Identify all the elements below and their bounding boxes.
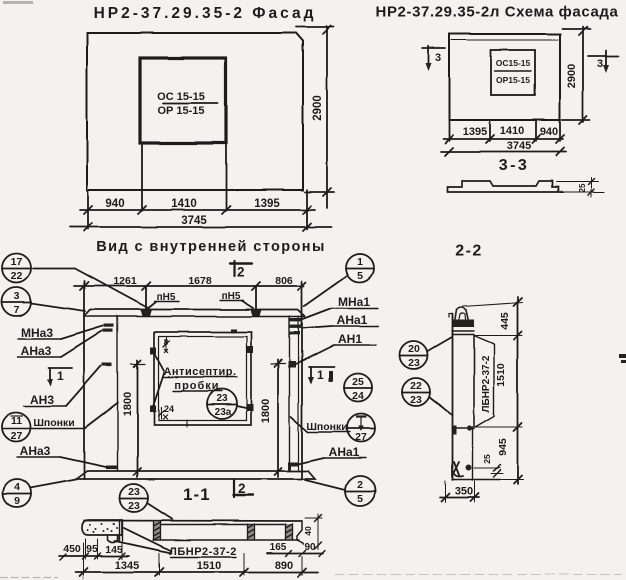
svg-text:пН5: пН5	[222, 291, 241, 302]
svg-text:165: 165	[270, 542, 287, 553]
svg-text:27: 27	[11, 430, 23, 442]
svg-text:2900: 2900	[312, 95, 324, 121]
svg-text:350: 350	[455, 486, 473, 498]
svg-text:450: 450	[63, 543, 81, 555]
svg-text:Шпонки: Шпонки	[33, 417, 74, 429]
svg-text:23: 23	[216, 393, 228, 404]
svg-text:23а: 23а	[215, 407, 232, 418]
svg-text:23: 23	[410, 394, 422, 406]
svg-text:1678: 1678	[188, 275, 212, 287]
svg-text:Вид с внутренней стороны: Вид с внутренней стороны	[96, 239, 325, 255]
svg-text:890: 890	[275, 560, 293, 572]
svg-text:23: 23	[128, 500, 140, 512]
svg-text:2: 2	[238, 481, 246, 496]
svg-text:АНа3: АНа3	[21, 344, 52, 358]
svg-text:22: 22	[11, 270, 23, 282]
svg-text:АН1: АН1	[338, 332, 362, 346]
svg-text:1800: 1800	[260, 399, 272, 423]
svg-text:пробки: пробки	[174, 380, 219, 392]
svg-text:АНа1: АНа1	[329, 445, 360, 459]
svg-text:940: 940	[105, 198, 124, 210]
svg-text:3: 3	[14, 290, 20, 302]
svg-text:1: 1	[57, 369, 64, 383]
svg-text:20: 20	[408, 343, 420, 355]
svg-text:806: 806	[275, 275, 293, 287]
svg-text:22: 22	[410, 380, 422, 392]
svg-text:25: 25	[482, 454, 492, 464]
svg-text:1: 1	[357, 256, 363, 268]
svg-text:2-2: 2-2	[455, 243, 483, 260]
svg-text:945: 945	[497, 438, 509, 456]
svg-text:пН5: пН5	[157, 292, 176, 303]
svg-text:АНа1: АНа1	[337, 313, 368, 327]
svg-text:Антисептир.: Антисептир.	[163, 366, 236, 378]
svg-text:МНа3: МНа3	[21, 326, 53, 340]
svg-text:2: 2	[237, 265, 245, 280]
svg-text:90: 90	[304, 542, 316, 553]
svg-text:145: 145	[105, 544, 123, 556]
svg-text:1800: 1800	[122, 392, 134, 416]
svg-text:1410: 1410	[500, 125, 524, 137]
svg-text:МНа1: МНа1	[338, 295, 370, 309]
svg-text:9: 9	[14, 495, 20, 507]
svg-text:НР2-37.29.35-2л Схема фасада: НР2-37.29.35-2л Схема фасада	[376, 4, 619, 21]
svg-text:1510: 1510	[197, 560, 221, 572]
svg-text:11: 11	[11, 415, 22, 427]
svg-text:3-3: 3-3	[499, 157, 530, 174]
svg-text:1395: 1395	[254, 198, 280, 210]
svg-text:ОР 15-15: ОР 15-15	[157, 105, 204, 117]
svg-text:1395: 1395	[463, 126, 487, 138]
svg-text:7: 7	[14, 304, 20, 316]
svg-text:3745: 3745	[181, 215, 207, 227]
svg-text:2: 2	[357, 479, 363, 491]
svg-text:АН3: АН3	[30, 393, 54, 407]
svg-text:ЛБНР2-37-2: ЛБНР2-37-2	[481, 355, 492, 412]
svg-text:3: 3	[597, 58, 603, 70]
svg-text:25: 25	[578, 183, 587, 192]
svg-text:1410: 1410	[171, 198, 197, 210]
svg-text:24: 24	[352, 390, 364, 402]
svg-text:НР2-37.29.35-2 Фасад: НР2-37.29.35-2 Фасад	[94, 5, 317, 22]
svg-text:1510: 1510	[495, 363, 507, 387]
svg-text:4: 4	[14, 481, 20, 493]
svg-text:2900: 2900	[566, 64, 578, 88]
svg-text:5: 5	[357, 270, 363, 282]
svg-text:3: 3	[435, 52, 441, 64]
svg-text:24: 24	[164, 404, 174, 414]
svg-text:1261: 1261	[113, 275, 137, 287]
svg-text:АНа3: АНа3	[20, 444, 51, 458]
svg-text:95: 95	[86, 543, 98, 555]
svg-text:23: 23	[128, 486, 140, 498]
svg-text:ОР15-15: ОР15-15	[496, 75, 530, 85]
svg-text:1345: 1345	[115, 560, 139, 572]
svg-text:940: 940	[540, 126, 558, 138]
svg-text:ЛБНР2-37-2: ЛБНР2-37-2	[169, 546, 237, 558]
svg-text:5: 5	[357, 493, 363, 505]
svg-text:23: 23	[408, 357, 420, 369]
svg-text:ОС 15-15: ОС 15-15	[157, 91, 205, 103]
svg-text:Шпонки: Шпонки	[306, 421, 347, 433]
svg-text:17: 17	[11, 256, 23, 268]
svg-text:27: 27	[355, 431, 367, 443]
svg-text:25: 25	[352, 376, 364, 388]
svg-text:1: 1	[317, 368, 324, 382]
svg-text:40: 40	[303, 526, 313, 536]
svg-text:8: 8	[164, 338, 169, 347]
svg-text:445: 445	[499, 312, 511, 330]
svg-text:ОС15-15: ОС15-15	[496, 58, 531, 68]
svg-text:3745: 3745	[507, 140, 531, 152]
svg-text:1-1: 1-1	[183, 485, 211, 504]
